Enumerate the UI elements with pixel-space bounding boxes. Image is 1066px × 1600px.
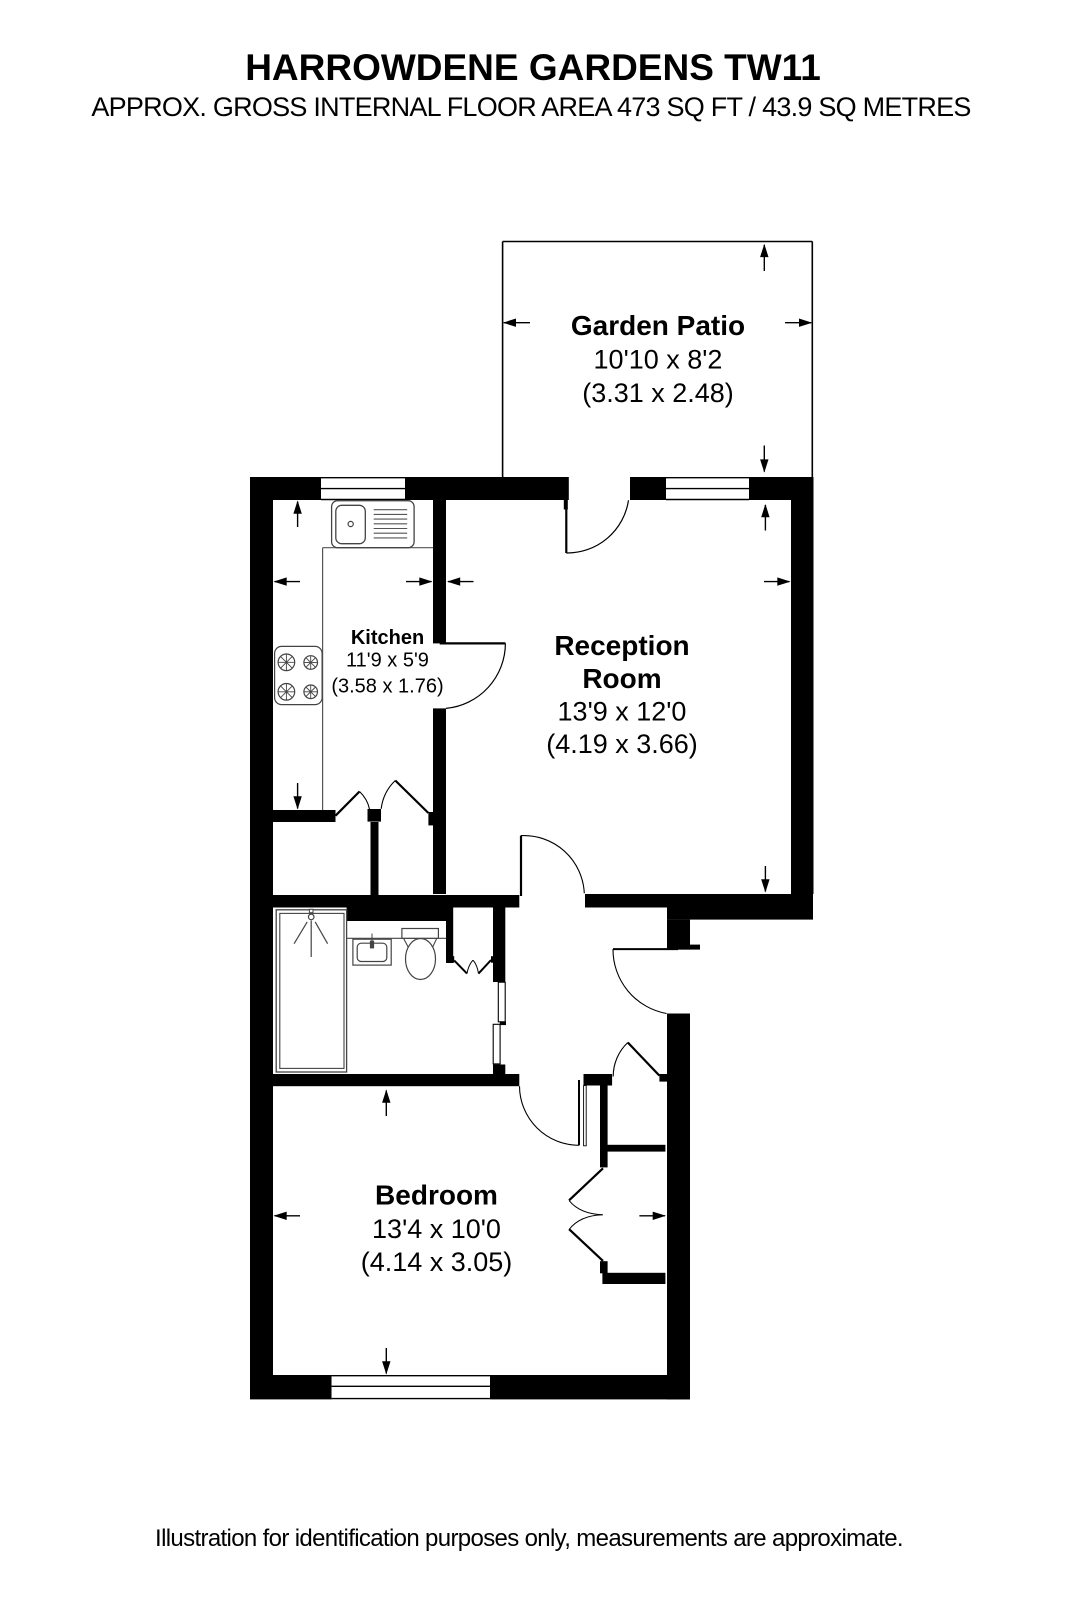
- svg-text:Garden Patio: Garden Patio: [571, 310, 745, 341]
- svg-text:13'4 x 10'0: 13'4 x 10'0: [372, 1214, 501, 1244]
- svg-text:(4.14 x 3.05): (4.14 x 3.05): [361, 1247, 513, 1277]
- svg-text:(3.31 x 2.48): (3.31 x 2.48): [582, 378, 734, 408]
- svg-text:APPROX. GROSS INTERNAL FLOOR A: APPROX. GROSS INTERNAL FLOOR AREA 473 SQ…: [91, 92, 970, 122]
- svg-text:Reception: Reception: [554, 630, 689, 661]
- svg-text:(3.58 x 1.76): (3.58 x 1.76): [331, 676, 443, 698]
- svg-text:Bedroom: Bedroom: [375, 1180, 498, 1211]
- svg-text:(4.19 x 3.66): (4.19 x 3.66): [546, 729, 698, 759]
- svg-text:Illustration for identificatio: Illustration for identification purposes…: [155, 1525, 903, 1552]
- svg-text:13'9 x 12'0: 13'9 x 12'0: [558, 697, 687, 727]
- svg-text:10'10 x 8'2: 10'10 x 8'2: [594, 345, 723, 375]
- svg-text:Room: Room: [582, 663, 661, 694]
- svg-text:Kitchen: Kitchen: [351, 627, 424, 649]
- svg-text:11'9 x 5'9: 11'9 x 5'9: [346, 650, 429, 672]
- svg-text:HARROWDENE GARDENS TW11: HARROWDENE GARDENS TW11: [245, 47, 821, 88]
